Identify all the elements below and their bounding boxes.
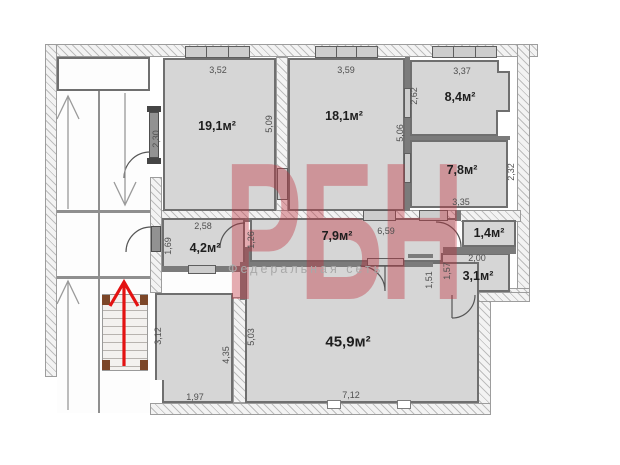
room-extension <box>155 293 233 403</box>
room-19-1 <box>163 58 276 211</box>
stair-post <box>140 295 148 305</box>
opening-18-84 <box>404 88 411 118</box>
stair-post <box>102 360 110 370</box>
room-18-1 <box>288 58 405 211</box>
room-4-2 <box>162 218 245 268</box>
door-jamb <box>147 158 161 164</box>
wall-exterior-left <box>45 44 57 377</box>
stair-post <box>140 360 148 370</box>
wall-exterior-bottom <box>150 403 491 415</box>
stairwell-landing <box>57 57 150 91</box>
wall-79-bottom-step <box>408 254 433 258</box>
extension-notch <box>150 380 164 403</box>
room-8-4-notch-top <box>497 60 510 73</box>
room-8-4 <box>410 60 510 136</box>
door-jamb <box>147 106 161 112</box>
floor-plan: РБН Федеральная сеть 19,1м²18,1м²8,4м²7,… <box>0 0 620 465</box>
window-top-1 <box>185 46 250 58</box>
doorway-78-corridor <box>419 210 448 221</box>
opening-19-18 <box>277 168 288 200</box>
wall-18-right <box>405 57 410 211</box>
window-top-3 <box>432 46 497 58</box>
room-1-4 <box>462 220 516 247</box>
stair-post <box>102 295 110 305</box>
door-leaf-42 <box>151 226 161 252</box>
wall-14-31 <box>443 247 516 254</box>
wall-exterior-right <box>517 44 530 296</box>
wall-84-78 <box>410 136 510 140</box>
window-45-bottom-2 <box>397 400 411 409</box>
door-gap-14 <box>455 221 461 247</box>
stairwell-divider-upper <box>57 210 150 213</box>
wall-79-bottom <box>240 262 433 267</box>
room-7-8 <box>410 140 508 208</box>
window-42-bottom <box>188 265 216 274</box>
room-8-4-notch-right <box>496 110 510 136</box>
doorway-18-corridor <box>363 210 396 221</box>
wall-45-left-upper <box>240 262 246 300</box>
window-45-bottom-1 <box>327 400 341 409</box>
stairwell-divider-lower <box>57 276 150 279</box>
doorway-79-45 <box>367 258 404 266</box>
door-leaf-stair-19 <box>149 112 159 158</box>
hall-strip <box>162 272 240 293</box>
wall-exterior-right-lower <box>478 296 491 408</box>
door-gap-42 <box>245 222 250 247</box>
window-top-2 <box>315 46 378 58</box>
room-45-9 <box>245 262 479 403</box>
opening-18-78 <box>404 153 411 183</box>
stairwell-lane-divider <box>98 91 100 413</box>
